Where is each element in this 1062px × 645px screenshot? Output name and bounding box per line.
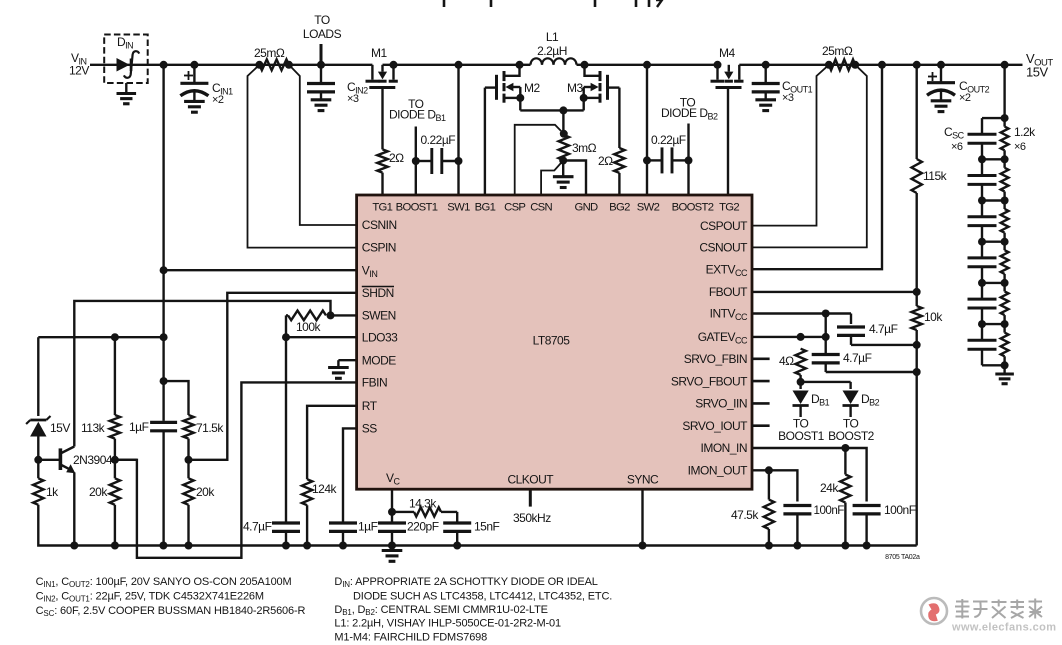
svg-text:SHDN: SHDN [362, 286, 394, 300]
svg-text:TO: TO [314, 13, 330, 27]
svg-text:8705 TA02a: 8705 TA02a [885, 554, 920, 561]
svg-text:1k: 1k [46, 485, 59, 499]
svg-text:BOOST1: BOOST1 [778, 429, 825, 443]
svg-text:MODE: MODE [362, 353, 396, 367]
svg-text:L1: L1 [546, 30, 559, 44]
svg-text:IMON_OUT: IMON_OUT [688, 464, 749, 478]
svg-text:M3: M3 [567, 81, 583, 95]
svg-text:SRVO_FBIN: SRVO_FBIN [684, 352, 747, 366]
svg-text:SW2: SW2 [637, 202, 660, 214]
svg-text:2Ω: 2Ω [598, 154, 613, 168]
svg-text:25mΩ: 25mΩ [254, 46, 285, 60]
svg-text:100k: 100k [296, 320, 322, 334]
svg-text:IMON_IN: IMON_IN [700, 441, 747, 455]
svg-text:4.7µF: 4.7µF [869, 322, 898, 336]
svg-text:SYNC: SYNC [627, 473, 659, 487]
svg-text:TG2: TG2 [719, 202, 739, 214]
svg-text:×3: ×3 [347, 93, 359, 105]
svg-text:FBOUT: FBOUT [709, 285, 748, 299]
svg-text:10k: 10k [924, 310, 943, 324]
svg-text:SRVO_FBOUT: SRVO_FBOUT [671, 374, 748, 388]
svg-text:0.22µF: 0.22µF [651, 133, 686, 147]
svg-text:24k: 24k [820, 481, 839, 495]
svg-text:L1: 2.2µH, VISHAY IHLP-5050CE-: L1: 2.2µH, VISHAY IHLP-5050CE-01-2R2-M-0… [334, 618, 561, 630]
svg-text:220pF: 220pF [407, 520, 439, 534]
svg-text:115k: 115k [923, 169, 948, 183]
svg-text:BG1: BG1 [475, 202, 496, 214]
svg-text:DIODE SUCH AS LTC4358, LTC4412: DIODE SUCH AS LTC4358, LTC4412, LTC4352,… [353, 591, 612, 603]
svg-text:2N3904: 2N3904 [73, 453, 113, 467]
svg-text:M1-M4: FAIRCHILD FDMS7698: M1-M4: FAIRCHILD FDMS7698 [334, 632, 487, 644]
svg-text:CSN: CSN [530, 202, 552, 214]
svg-text:×3: ×3 [782, 92, 794, 104]
svg-text:CSPOUT: CSPOUT [700, 219, 748, 233]
svg-text:BOOST1: BOOST1 [396, 202, 438, 214]
svg-text:15V: 15V [1026, 65, 1048, 80]
svg-text:BG2: BG2 [609, 202, 630, 214]
svg-text:25mΩ: 25mΩ [822, 44, 853, 58]
svg-text:×6: ×6 [1014, 141, 1026, 153]
svg-text:M2: M2 [524, 81, 540, 95]
svg-text:20k: 20k [196, 485, 215, 499]
svg-text:TG1: TG1 [372, 202, 392, 214]
svg-text:15nF: 15nF [474, 520, 500, 534]
svg-text:LOADS: LOADS [303, 27, 342, 41]
svg-text:100nF: 100nF [884, 503, 916, 517]
svg-text:4.7µF: 4.7µF [843, 351, 872, 365]
svg-text:×2: ×2 [212, 94, 224, 106]
svg-text:M1: M1 [371, 46, 387, 60]
svg-text:1.2k: 1.2k [1014, 125, 1036, 139]
svg-text:14.3k: 14.3k [409, 497, 437, 511]
svg-text:20k: 20k [89, 485, 108, 499]
svg-text:CSNOUT: CSNOUT [699, 241, 748, 255]
svg-text:DIN: APPROPRIATE 2A SCHOTTKY D: DIN: APPROPRIATE 2A SCHOTTKY DIODE OR ID… [334, 576, 597, 589]
svg-text:SW1: SW1 [447, 202, 470, 214]
svg-text:SS: SS [362, 422, 378, 436]
svg-text:4.7µF: 4.7µF [243, 520, 272, 534]
svg-text:×2: ×2 [959, 92, 971, 104]
svg-text:350kHz: 350kHz [513, 511, 551, 525]
svg-text:www.elecfans.com: www.elecfans.com [951, 622, 1056, 634]
svg-text:1µF: 1µF [129, 420, 149, 434]
svg-text:3mΩ: 3mΩ [572, 141, 597, 155]
svg-text:BOOST2: BOOST2 [828, 429, 875, 443]
svg-text:CSPIN: CSPIN [362, 241, 396, 255]
svg-text:GND: GND [574, 202, 598, 214]
svg-text:100nF: 100nF [814, 504, 845, 517]
svg-text:0.22µF: 0.22µF [421, 133, 456, 147]
svg-text:2Ω: 2Ω [389, 151, 404, 165]
svg-text:FBIN: FBIN [362, 376, 387, 390]
svg-text:SWEN: SWEN [362, 309, 396, 323]
svg-text:CSP: CSP [504, 202, 525, 214]
svg-text:LT8705: LT8705 [533, 334, 571, 348]
svg-text:BOOST2: BOOST2 [672, 202, 714, 214]
svg-text:71.5k: 71.5k [196, 421, 224, 435]
svg-text:LDO33: LDO33 [362, 330, 398, 344]
svg-text:SRVO_IOUT: SRVO_IOUT [682, 419, 748, 433]
svg-text:CSNIN: CSNIN [362, 218, 397, 232]
svg-text:1µF: 1µF [358, 520, 378, 534]
svg-text:4Ω: 4Ω [779, 354, 794, 368]
svg-text:113k: 113k [81, 421, 106, 435]
svg-text:CLKOUT: CLKOUT [507, 473, 554, 487]
svg-text:M4: M4 [719, 46, 735, 60]
svg-text:47.5k: 47.5k [731, 508, 759, 522]
svg-text:CSC: 60F, 2.5V COOPER BUSSMAN: CSC: 60F, 2.5V COOPER BUSSMAN HB1840-2R5… [36, 605, 306, 618]
svg-text:×6: ×6 [951, 141, 963, 153]
svg-text:SRVO_IIN: SRVO_IIN [695, 397, 747, 411]
svg-text:RT: RT [362, 399, 378, 413]
svg-text:2.2µH: 2.2µH [537, 44, 567, 58]
svg-text:15V: 15V [50, 421, 70, 435]
svg-text:124k: 124k [312, 482, 338, 496]
svg-text:12V: 12V [69, 64, 89, 78]
